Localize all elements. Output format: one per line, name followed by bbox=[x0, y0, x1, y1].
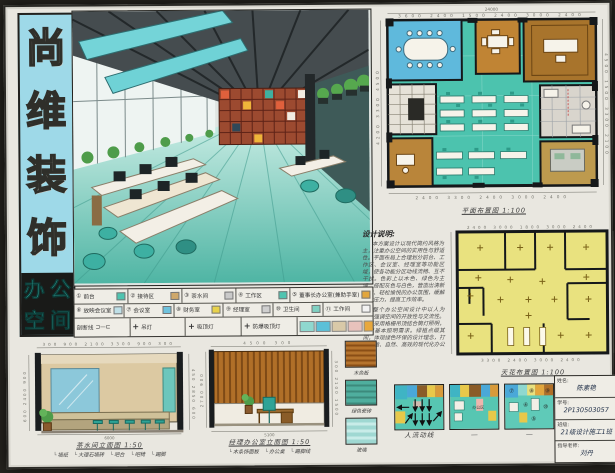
circulation-diagram: 人流动线 bbox=[394, 384, 444, 452]
legend-section-line: 剖断线⊐—⊏ bbox=[75, 319, 131, 337]
svg-text:24000: 24000 bbox=[485, 7, 499, 12]
subtitle-char: 公 bbox=[50, 273, 71, 303]
elevation-caption: 经理办公室立面图 1:50 bbox=[229, 437, 311, 448]
color-chip bbox=[316, 320, 331, 331]
color-swatch bbox=[170, 292, 179, 300]
title-block-row: 姓名: 陈素艳 bbox=[555, 376, 615, 398]
subtitle-char: 办 bbox=[24, 273, 45, 303]
legend: ①前台 ②接待区 ③茶水间 ④工作区 ⑤董事长办公室(兼助手室) ⑥放映会议室 … bbox=[73, 287, 373, 338]
zoning-caption: — bbox=[471, 430, 478, 440]
legend-item: ②接待区 bbox=[128, 289, 182, 303]
section-line-icon: ⊐—⊏ bbox=[95, 325, 110, 331]
material-label: 绿色瓷砖 bbox=[351, 408, 371, 415]
title-strip: 尚 维 装 饰 办 公 空 间 bbox=[17, 13, 75, 337]
legend-item: ③茶水间 bbox=[182, 289, 236, 303]
color-chip bbox=[332, 320, 347, 331]
design-notes-title: 设计说明: bbox=[362, 228, 444, 240]
legend-item: ④工作区 bbox=[236, 288, 290, 302]
legend-lamp-item: +吊灯 bbox=[130, 318, 186, 336]
lamp-cross-icon: + bbox=[132, 324, 139, 330]
svg-text:450 2850 600: 450 2850 600 bbox=[191, 369, 196, 421]
elevation-callouts: 木条饰面板 办公桌 踢脚线 bbox=[229, 448, 311, 456]
color-swatch bbox=[113, 307, 122, 315]
material-swatches: 木色板 绿色瓷砖 玻璃 bbox=[342, 341, 381, 455]
svg-text:⑨: ⑨ bbox=[545, 387, 550, 394]
svg-text:300 900 2100 3300 900 300: 300 900 2100 3300 900 300 bbox=[43, 341, 175, 347]
color-chip bbox=[300, 321, 315, 332]
legend-item: ①前台 bbox=[74, 289, 128, 303]
board-subtitle: 办 公 空 间 bbox=[21, 273, 73, 335]
legend-item: ⑧财务室 bbox=[174, 303, 224, 317]
legend-item: ⑩卫生间 bbox=[274, 303, 324, 317]
ceiling-plan: 2400 3000 1800 3000 2400 3300 2400 3000 … bbox=[447, 223, 615, 376]
title-block-row: 学号: 2P130503057 bbox=[555, 398, 615, 420]
numbered-zone-diagram: ⑦ ⑧ ⑨ ④ ⑩ ⑤ — bbox=[504, 383, 554, 451]
svg-text:⑤: ⑤ bbox=[531, 416, 536, 422]
zoning-diagram: 办公区 — bbox=[449, 384, 499, 452]
svg-text:4500 300: 4500 300 bbox=[243, 340, 294, 345]
color-swatch bbox=[361, 290, 370, 298]
legend-item: ⑥放映会议室 bbox=[74, 304, 124, 318]
color-swatch bbox=[262, 306, 271, 314]
color-swatch bbox=[212, 306, 221, 314]
title-block-row: 班级: 21级设计施工1班 bbox=[555, 419, 615, 441]
title-char: 维 bbox=[26, 83, 66, 141]
title-char: 饰 bbox=[27, 210, 67, 268]
subtitle-char: 空 bbox=[24, 304, 45, 334]
elevation-caption: 茶水间立面图 1:50 bbox=[76, 440, 143, 450]
material-swatch-wood bbox=[345, 341, 377, 368]
title-block: 姓名: 陈素艳 学号: 2P130503057 班级: 21级设计施工1班 指导… bbox=[554, 375, 615, 463]
elevation-manager-office: 4500 300 2700 900 300 2100 1500 5100 经理办… bbox=[198, 339, 341, 456]
floor-plan: 24000 3600 2400 1500 2400 3000 2400 2400… bbox=[371, 5, 615, 225]
material-label: 玻璃 bbox=[356, 447, 366, 454]
svg-text:办公区: 办公区 bbox=[472, 404, 484, 410]
svg-text:⑩: ⑩ bbox=[543, 403, 548, 410]
color-swatch bbox=[312, 305, 321, 313]
design-notes-paragraph: 本方案设计以现代简约风格为主，注重办公空间的实用性与舒适性。平面布局上合理划分前… bbox=[362, 241, 444, 305]
legend-lamp-item: +吸顶灯 bbox=[186, 318, 242, 336]
elevation-callouts: 墙纸 大理石墙砖 吧台 吧椅 踢脚 bbox=[53, 451, 165, 459]
svg-text:300 2100 1500: 300 2100 1500 bbox=[334, 361, 339, 418]
elevation-tea-room: 300 900 2100 3300 900 300 600 2400 900 4… bbox=[20, 340, 199, 459]
color-swatch bbox=[361, 305, 370, 313]
photo-background: 尚 维 装 饰 办 公 空 间 bbox=[0, 0, 615, 473]
svg-text:4500 1500 3300 2100: 4500 1500 3300 2100 bbox=[604, 53, 610, 157]
legend-item: ⑨经理室 bbox=[224, 303, 274, 317]
svg-text:600 2400 900: 600 2400 900 bbox=[22, 370, 27, 422]
perspective-rendering bbox=[71, 9, 373, 287]
color-swatch bbox=[278, 291, 287, 299]
numbered-zone-caption: — bbox=[526, 429, 533, 439]
board-title: 尚 维 装 饰 bbox=[19, 15, 73, 273]
lamp-cross-icon: + bbox=[244, 324, 251, 330]
color-swatch bbox=[224, 291, 233, 299]
legend-item: ⑤董事长办公室(兼助手室) bbox=[290, 288, 372, 302]
svg-text:2400 3300 2400 3000 2400: 2400 3300 2400 3000 2400 bbox=[415, 194, 570, 200]
legend-item: ⑪工作间 bbox=[324, 302, 373, 316]
svg-text:3300 2400 3000 2400: 3300 2400 3000 2400 bbox=[481, 357, 583, 363]
material-swatch-glass bbox=[345, 418, 377, 445]
svg-text:⑧: ⑧ bbox=[529, 388, 534, 394]
title-char: 装 bbox=[26, 146, 66, 204]
legend-row-symbols: 剖断线⊐—⊏ +吊灯 +吸顶灯 +防爆吸顶灯 bbox=[75, 317, 373, 337]
svg-text:2400 3000 1800 3000 2400: 2400 3000 1800 3000 2400 bbox=[467, 224, 595, 230]
svg-text:⑦: ⑦ bbox=[509, 388, 514, 395]
legend-color-chips bbox=[298, 317, 373, 335]
circulation-caption: 人流动线 bbox=[404, 430, 434, 440]
color-swatch bbox=[162, 306, 171, 314]
analysis-plans: 人流动线 办公区 — bbox=[394, 383, 552, 452]
material-label: 木色板 bbox=[353, 369, 368, 376]
subtitle-char: 间 bbox=[50, 304, 71, 334]
title-block-row: 指导老师: 刘丹 bbox=[555, 441, 615, 462]
color-swatch bbox=[116, 292, 125, 300]
svg-text:4200 3300 4500: 4200 3300 4500 bbox=[375, 68, 381, 145]
color-chip bbox=[364, 320, 373, 331]
design-board: 尚 维 装 饰 办 公 空 间 bbox=[3, 1, 614, 469]
color-chip bbox=[348, 320, 363, 331]
legend-item: ⑦会议室 bbox=[124, 304, 174, 318]
floor-plan-caption: 平面布置图 1:100 bbox=[373, 205, 615, 217]
svg-text:④: ④ bbox=[523, 402, 528, 408]
title-char: 尚 bbox=[25, 19, 65, 77]
lamp-cross-icon: + bbox=[188, 324, 195, 330]
legend-lamp-item: +防爆吸顶灯 bbox=[242, 317, 298, 335]
material-swatch-tile bbox=[345, 379, 377, 406]
svg-text:2700 900: 2700 900 bbox=[199, 372, 204, 407]
